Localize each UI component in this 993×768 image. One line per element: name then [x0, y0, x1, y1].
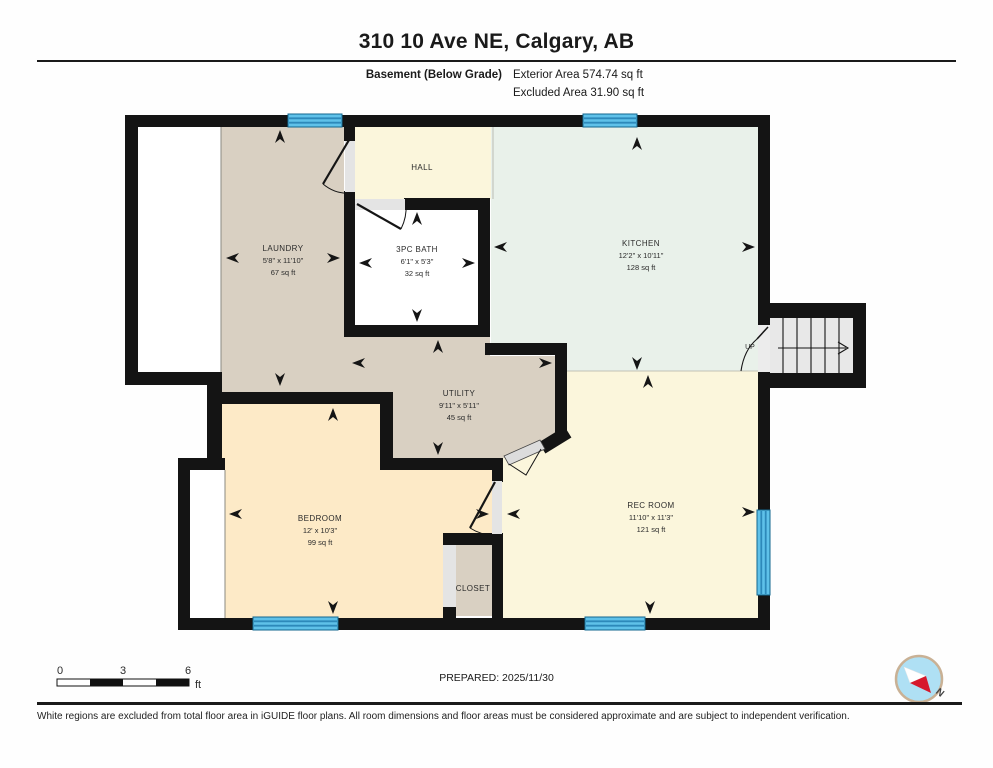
- svg-text:99 sq ft: 99 sq ft: [308, 538, 334, 547]
- room-label-closet: CLOSET: [456, 584, 490, 593]
- svg-text:67 sq ft: 67 sq ft: [271, 268, 297, 277]
- svg-text:9'11" x 5'11": 9'11" x 5'11": [439, 401, 479, 410]
- svg-text:45 sq ft: 45 sq ft: [447, 413, 473, 422]
- svg-text:HALL: HALL: [411, 163, 433, 172]
- room-kitchen: [491, 127, 758, 371]
- window-laundry-top: [288, 114, 342, 127]
- prepared-date: PREPARED: 2025/11/30: [0, 672, 993, 684]
- stairs-up-label: UP: [745, 344, 755, 351]
- room-bath: [355, 210, 478, 325]
- svg-text:REC ROOM: REC ROOM: [627, 501, 674, 510]
- svg-text:121 sq ft: 121 sq ft: [637, 525, 667, 534]
- floor-plan-drawing: UP: [0, 0, 993, 768]
- window-rec-right: [757, 510, 770, 595]
- svg-text:6'1" x 5'3": 6'1" x 5'3": [401, 257, 434, 266]
- svg-text:KITCHEN: KITCHEN: [622, 239, 660, 248]
- excluded-region-bottom: [190, 470, 225, 618]
- svg-text:11'10" x 11'3": 11'10" x 11'3": [629, 513, 674, 522]
- window-rec-bottom: [585, 617, 645, 630]
- window-bedroom-bottom: [253, 617, 338, 630]
- room-closet: [453, 543, 495, 616]
- svg-text:3PC BATH: 3PC BATH: [396, 245, 438, 254]
- svg-text:128 sq ft: 128 sq ft: [627, 263, 657, 272]
- disclaimer-text: White regions are excluded from total fl…: [37, 711, 967, 722]
- window-kitchen-top: [583, 114, 637, 127]
- floor-plan-page: 310 10 Ave NE, Calgary, AB Basement (Bel…: [0, 0, 993, 768]
- svg-text:UTILITY: UTILITY: [443, 389, 476, 398]
- svg-text:12'2" x 10'11": 12'2" x 10'11": [619, 251, 664, 260]
- svg-text:CLOSET: CLOSET: [456, 584, 490, 593]
- svg-text:BEDROOM: BEDROOM: [298, 514, 342, 523]
- svg-text:12' x 10'3": 12' x 10'3": [303, 526, 338, 535]
- excluded-region-top: [138, 127, 220, 372]
- svg-text:32 sq ft: 32 sq ft: [405, 269, 431, 278]
- footer-divider: [37, 702, 962, 705]
- svg-text:LAUNDRY: LAUNDRY: [263, 244, 304, 253]
- svg-text:5'8" x 11'10": 5'8" x 11'10": [263, 256, 304, 265]
- room-label-hall: HALL: [411, 163, 433, 172]
